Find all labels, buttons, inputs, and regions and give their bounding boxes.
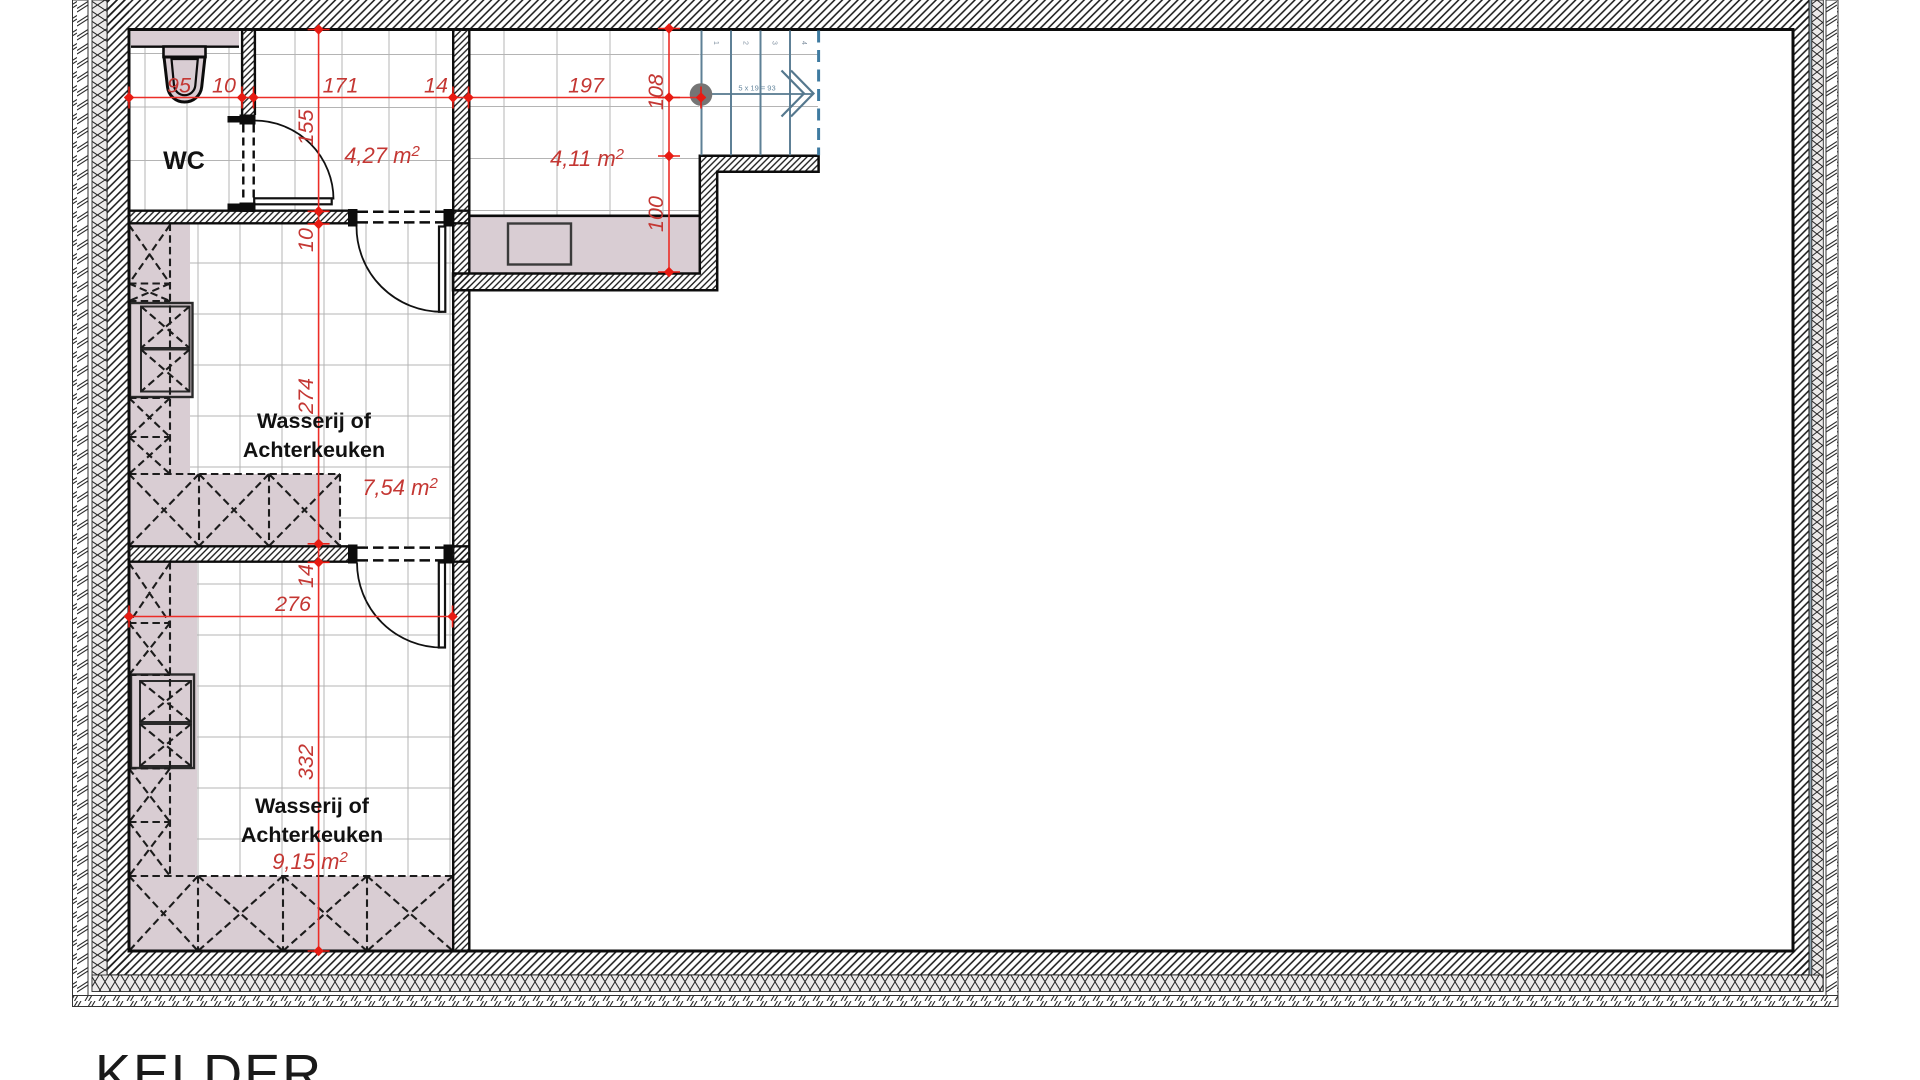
svg-text:1: 1 xyxy=(712,41,719,45)
svg-text:4,11 m2: 4,11 m2 xyxy=(550,146,625,171)
svg-text:Achterkeuken: Achterkeuken xyxy=(243,438,385,462)
svg-text:Achterkeuken: Achterkeuken xyxy=(241,823,383,847)
svg-text:7,54 m2: 7,54 m2 xyxy=(362,475,438,500)
svg-text:10: 10 xyxy=(212,74,236,98)
svg-text:171: 171 xyxy=(323,74,359,98)
svg-text:95: 95 xyxy=(167,74,192,98)
svg-text:WC: WC xyxy=(163,147,205,175)
svg-text:4: 4 xyxy=(800,41,807,45)
svg-text:155: 155 xyxy=(294,109,318,146)
svg-text:197: 197 xyxy=(568,74,605,98)
svg-text:4,27 m2: 4,27 m2 xyxy=(344,143,420,168)
svg-text:276: 276 xyxy=(274,592,311,616)
svg-text:5 x 19 = 93: 5 x 19 = 93 xyxy=(738,84,775,93)
svg-text:100: 100 xyxy=(644,196,668,232)
svg-text:14: 14 xyxy=(424,74,448,98)
svg-text:3: 3 xyxy=(771,41,778,45)
svg-text:108: 108 xyxy=(644,74,668,110)
svg-text:2: 2 xyxy=(741,41,748,45)
svg-text:9,15 m2: 9,15 m2 xyxy=(272,849,348,874)
svg-text:KELDER: KELDER xyxy=(95,1044,323,1080)
svg-text:14: 14 xyxy=(294,564,318,588)
svg-text:10: 10 xyxy=(294,228,318,252)
svg-text:Wasserij of: Wasserij of xyxy=(255,794,370,818)
svg-text:332: 332 xyxy=(294,744,318,780)
svg-text:Wasserij of: Wasserij of xyxy=(257,409,372,433)
